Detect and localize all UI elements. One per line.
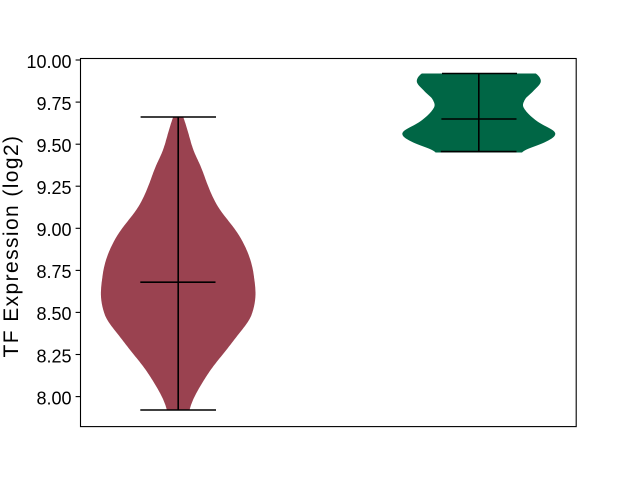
svg-text:9.75: 9.75 bbox=[36, 94, 71, 114]
svg-text:9.50: 9.50 bbox=[36, 136, 71, 156]
svg-text:TF Expression (log2): TF Expression (log2) bbox=[0, 135, 23, 358]
svg-text:8.75: 8.75 bbox=[36, 262, 71, 282]
svg-text:10.00: 10.00 bbox=[26, 52, 71, 72]
svg-text:8.50: 8.50 bbox=[36, 304, 71, 324]
svg-text:9.25: 9.25 bbox=[36, 178, 71, 198]
svg-text:8.00: 8.00 bbox=[36, 388, 71, 408]
svg-text:9.00: 9.00 bbox=[36, 220, 71, 240]
svg-text:8.25: 8.25 bbox=[36, 346, 71, 366]
